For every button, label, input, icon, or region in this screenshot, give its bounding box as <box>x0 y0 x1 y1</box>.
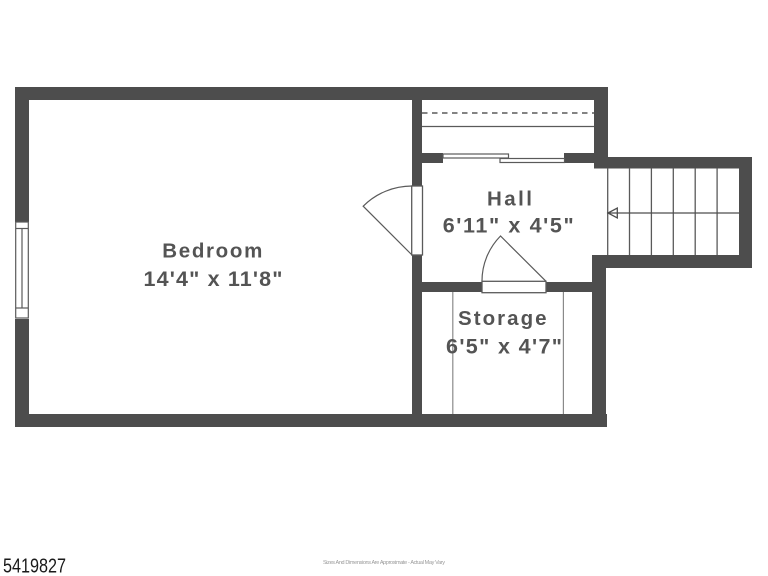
svg-text:6'5" x 4'7": 6'5" x 4'7" <box>446 335 562 359</box>
svg-text:Sizes And Dimensions Are Appro: Sizes And Dimensions Are Approximate - A… <box>323 560 445 566</box>
svg-text:5419827: 5419827 <box>3 556 66 576</box>
svg-text:14'4" x 11'8": 14'4" x 11'8" <box>144 267 283 291</box>
svg-text:6'11" x 4'5": 6'11" x 4'5" <box>443 214 574 238</box>
